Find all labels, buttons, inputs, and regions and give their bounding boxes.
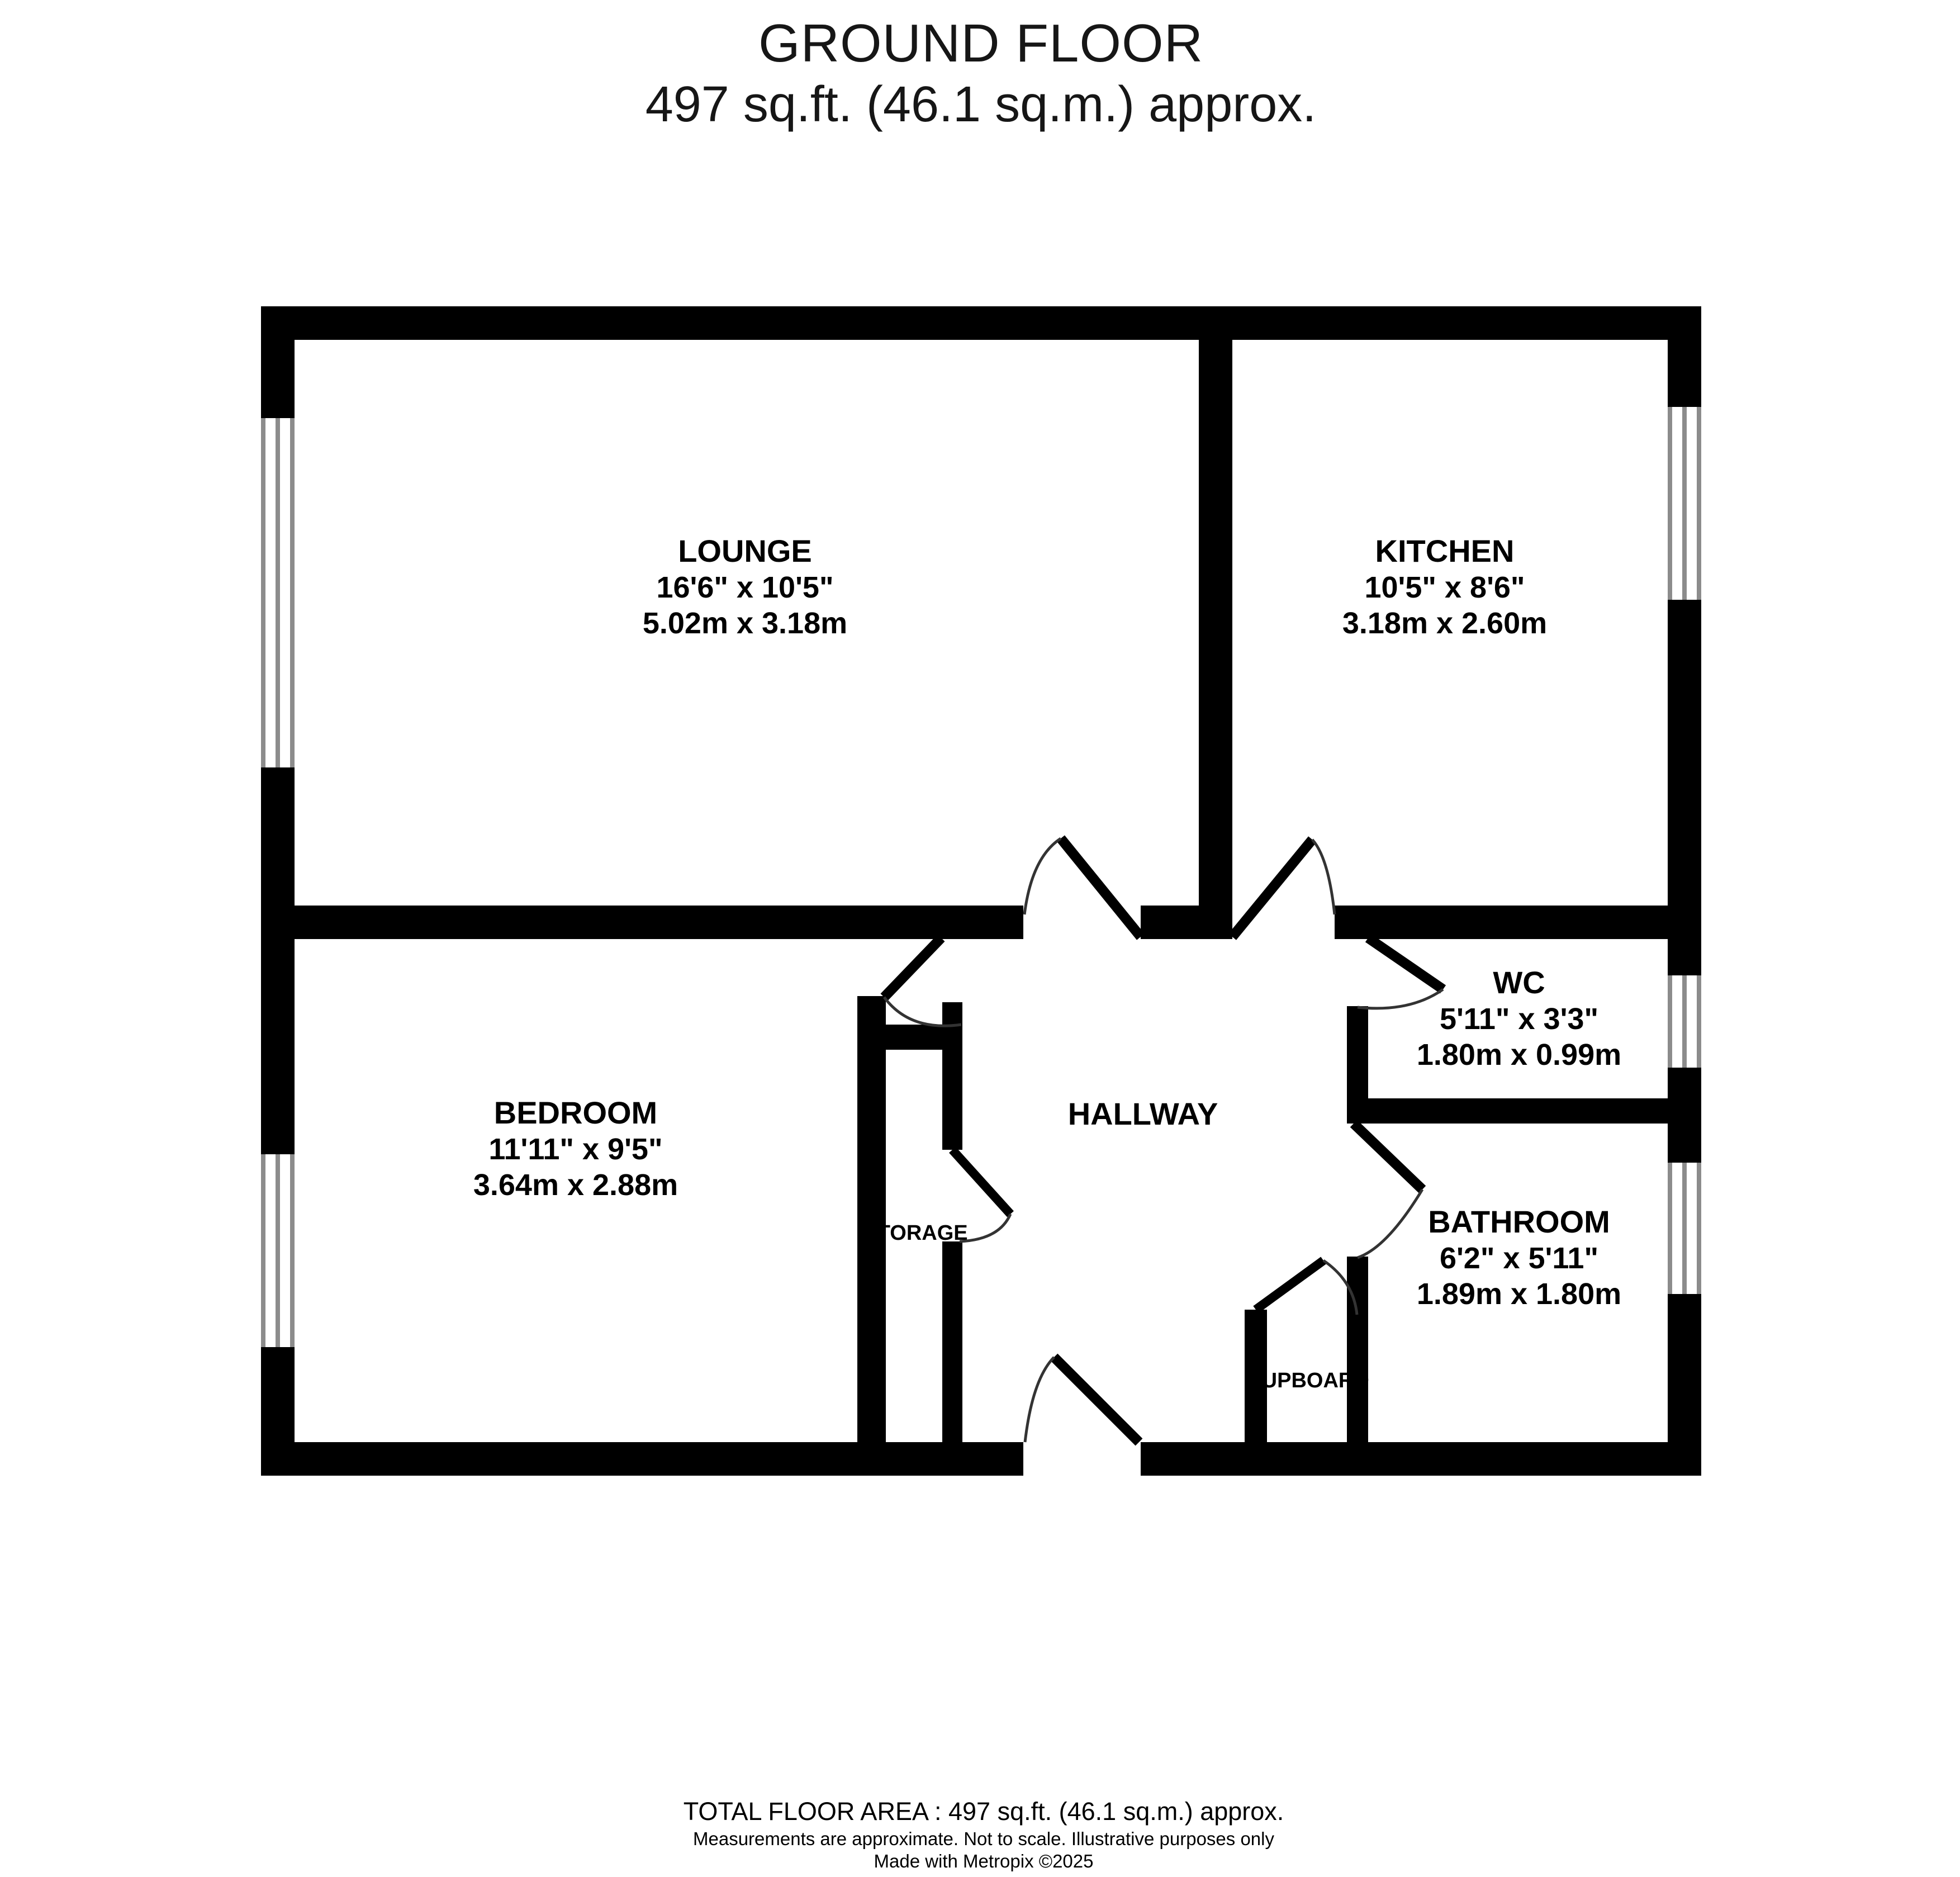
wc-metric: 1.80m x 0.99m: [1417, 1038, 1621, 1072]
wall-kitchen-wc-divider: [1335, 906, 1668, 939]
wall-outer-bottom-right: [1141, 1442, 1701, 1476]
kitchen-window: [1668, 407, 1701, 600]
lounge-metric: 5.02m x 3.18m: [643, 606, 847, 640]
kitchen-metric: 3.18m x 2.60m: [1342, 606, 1547, 640]
bedroom-name: BEDROOM: [494, 1095, 657, 1130]
wall-wc-left: [1347, 1006, 1368, 1098]
kitchen-label: KITCHEN 10'5" x 8'6" 3.18m x 2.60m: [1342, 533, 1547, 640]
footer-total-area: TOTAL FLOOR AREA : 497 sq.ft. (46.1 sq.m…: [684, 1795, 1284, 1828]
wall-outer-right-3: [1668, 1068, 1701, 1163]
bedroom-metric: 3.64m x 2.88m: [473, 1168, 678, 1202]
wall-bedroom-hall-divider: [857, 996, 886, 1442]
wall-hall-top-stub: [1141, 906, 1232, 939]
kitchen-imperial: 10'5" x 8'6": [1364, 571, 1525, 604]
cupboard-door: [1256, 1260, 1357, 1315]
entrance-door: [1025, 1357, 1139, 1442]
wc-name: WC: [1493, 965, 1545, 1000]
bathroom-metric: 1.89m x 1.80m: [1417, 1277, 1621, 1311]
wall-outer-top: [261, 306, 1701, 340]
bedroom-window: [261, 1154, 295, 1347]
wc-imperial: 5'11" x 3'3": [1440, 1002, 1598, 1036]
lounge-label: LOUNGE 16'6" x 10'5" 5.02m x 3.18m: [643, 533, 847, 640]
lounge-window: [261, 418, 295, 767]
wall-bathroom-left: [1347, 1257, 1368, 1442]
wall-outer-right-2: [1668, 600, 1701, 975]
footer-disclaimer: Measurements are approximate. Not to sca…: [684, 1828, 1284, 1850]
hallway-label: HALLWAY: [1068, 1096, 1218, 1131]
wc-door: [1358, 938, 1443, 1008]
floorplan-footer: TOTAL FLOOR AREA : 497 sq.ft. (46.1 sq.m…: [684, 1795, 1284, 1873]
wall-cupboard-left: [1245, 1310, 1267, 1442]
wall-lounge-kitchen-divider: [1199, 340, 1232, 939]
bathroom-door: [1354, 1124, 1422, 1258]
wall-wc-bathroom-divider: [1347, 1098, 1668, 1124]
wc-window: [1668, 975, 1701, 1068]
bathroom-name: BATHROOM: [1428, 1204, 1610, 1239]
kitchen-name: KITCHEN: [1375, 533, 1515, 568]
bathroom-window: [1668, 1163, 1701, 1294]
wall-storage-right-lower: [942, 1241, 962, 1442]
footer-credit: Made with Metropix ©2025: [684, 1850, 1284, 1873]
bedroom-label: BEDROOM 11'11" x 9'5" 3.64m x 2.88m: [473, 1095, 678, 1202]
wc-label: WC 5'11" x 3'3" 1.80m x 0.99m: [1417, 965, 1621, 1072]
floorplan-drawing: STORAGE CUPBOARD: [0, 0, 1960, 1877]
bathroom-imperial: 6'2" x 5'11": [1440, 1241, 1598, 1275]
lounge-door: [1024, 838, 1141, 937]
bedroom-imperial: 11'11" x 9'5": [488, 1132, 662, 1166]
wall-lounge-bottom: [295, 906, 1023, 939]
wall-outer-left-2: [261, 767, 295, 1154]
wall-outer-left-1: [261, 306, 295, 418]
bathroom-label: BATHROOM 6'2" x 5'11" 1.89m x 1.80m: [1417, 1204, 1621, 1311]
wall-outer-right-1: [1668, 306, 1701, 407]
lounge-name: LOUNGE: [678, 533, 812, 568]
floorplan-page: GROUND FLOOR 497 sq.ft. (46.1 sq.m.) app…: [0, 0, 1960, 1877]
lounge-imperial: 16'6" x 10'5": [656, 571, 833, 604]
wall-outer-bottom-left: [261, 1442, 1023, 1476]
kitchen-door: [1232, 840, 1335, 937]
wall-storage-top: [886, 1025, 942, 1050]
